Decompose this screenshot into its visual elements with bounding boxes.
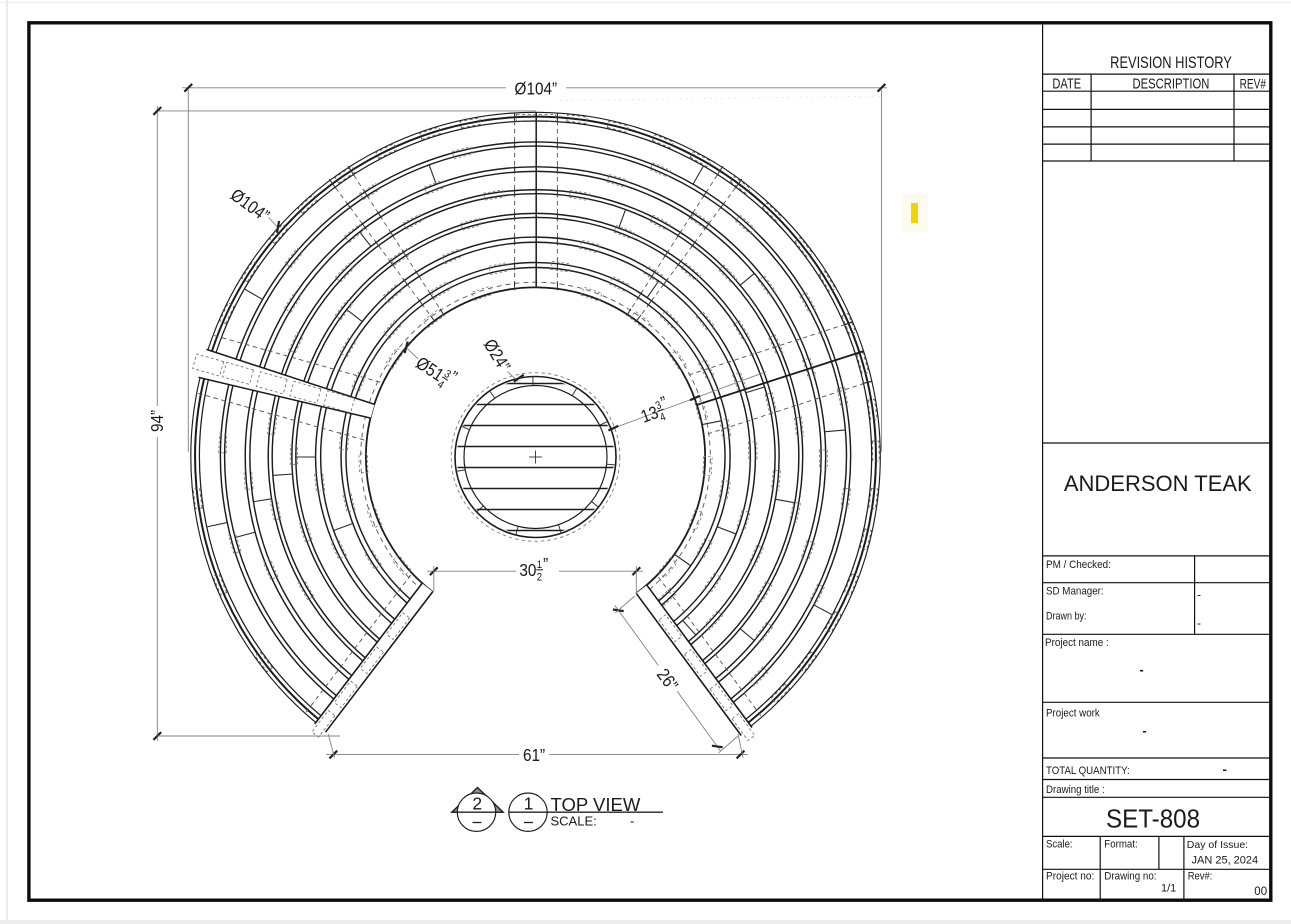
svg-text:TOP VIEW: TOP VIEW (551, 794, 641, 815)
svg-text:-: - (1223, 762, 1227, 777)
svg-text:DESCRIPTION: DESCRIPTION (1132, 75, 1209, 92)
svg-text:SD Manager:: SD Manager: (1046, 586, 1104, 598)
svg-text:REVISION HISTORY: REVISION HISTORY (1110, 55, 1232, 73)
svg-text:26”: 26” (653, 665, 683, 695)
svg-text:Project work: Project work (1046, 708, 1101, 720)
svg-text:TOTAL QUANTITY:: TOTAL QUANTITY: (1046, 765, 1130, 777)
svg-text:DATE: DATE (1052, 75, 1081, 92)
svg-text:1/1: 1/1 (1161, 883, 1176, 895)
svg-text:SET-808: SET-808 (1106, 805, 1200, 834)
svg-text:-: - (1197, 616, 1201, 630)
svg-text:4: 4 (659, 411, 668, 424)
svg-text:”: ” (543, 554, 548, 574)
svg-text:Rev#:: Rev#: (1188, 871, 1213, 883)
svg-text:Project name :: Project name : (1045, 638, 1109, 650)
svg-text:2: 2 (537, 572, 542, 584)
svg-text:Format:: Format: (1104, 839, 1137, 851)
svg-text:30: 30 (519, 560, 536, 580)
svg-text:2: 2 (472, 794, 482, 814)
svg-text:-: - (630, 814, 634, 829)
svg-text:Drawing title :: Drawing title : (1046, 785, 1105, 797)
svg-text:-: - (1197, 588, 1201, 602)
svg-text:94”: 94” (147, 410, 167, 432)
svg-text:00: 00 (1254, 886, 1267, 898)
svg-text:-: - (1142, 723, 1146, 738)
svg-text:1: 1 (524, 794, 534, 814)
svg-text:-: - (1139, 662, 1143, 677)
svg-text:Ø104”: Ø104” (227, 185, 273, 227)
svg-text:Project no:: Project no: (1046, 870, 1094, 882)
svg-text:REV#: REV# (1240, 76, 1267, 92)
svg-text:SCALE:: SCALE: (551, 814, 597, 829)
svg-text:Drawn by:: Drawn by: (1046, 611, 1087, 623)
svg-text:Drawing no:: Drawing no: (1104, 871, 1156, 883)
svg-text:Scale:: Scale: (1046, 839, 1073, 851)
svg-text:Ø24”: Ø24” (479, 335, 514, 375)
svg-text:JAN 25, 2024: JAN 25, 2024 (1192, 855, 1259, 867)
svg-text:PM / Checked:: PM / Checked: (1046, 560, 1111, 572)
svg-text:Ø104”: Ø104” (515, 78, 557, 98)
svg-text:ANDERSON TEAK: ANDERSON TEAK (1064, 471, 1252, 496)
svg-text:61”: 61” (523, 745, 545, 765)
svg-text:Day of Issue:: Day of Issue: (1187, 839, 1248, 851)
